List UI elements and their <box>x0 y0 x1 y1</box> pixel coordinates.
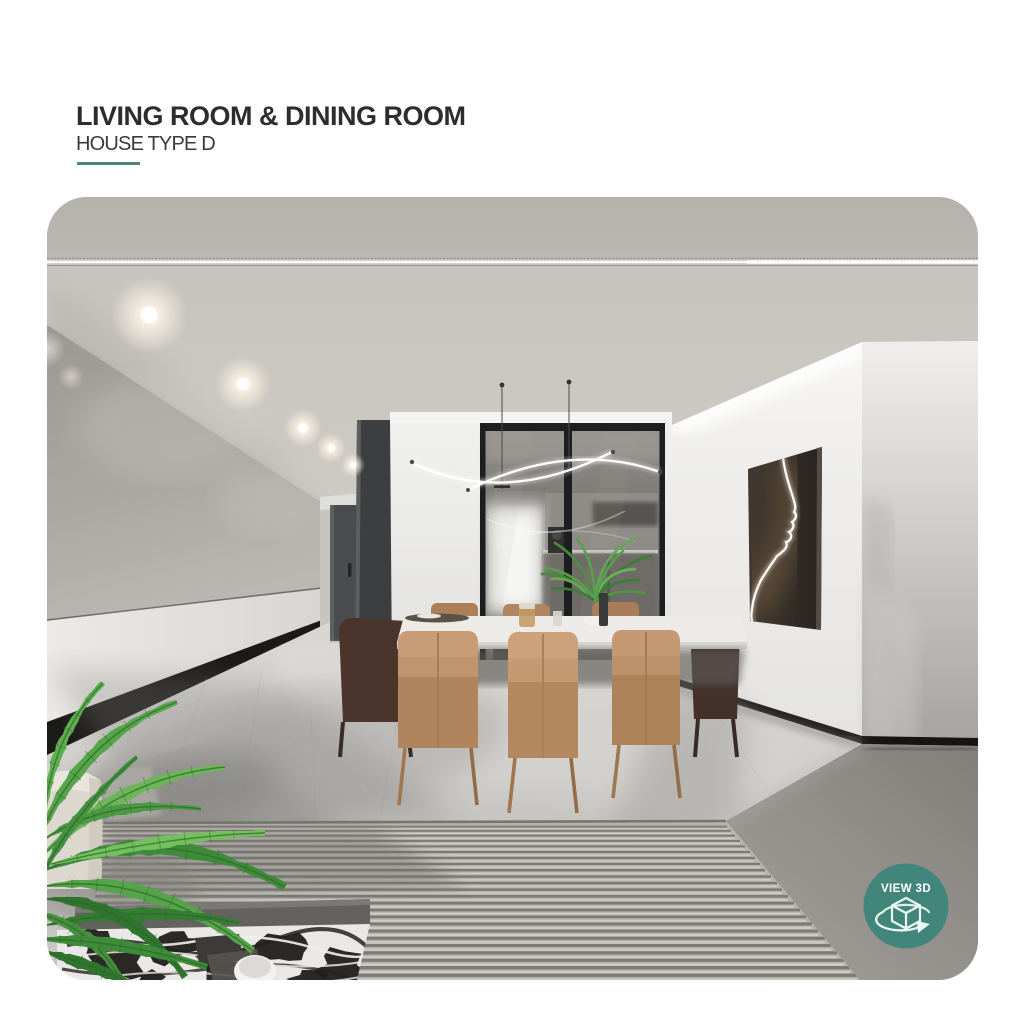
svg-text:VIEW 3D: VIEW 3D <box>881 883 931 895</box>
